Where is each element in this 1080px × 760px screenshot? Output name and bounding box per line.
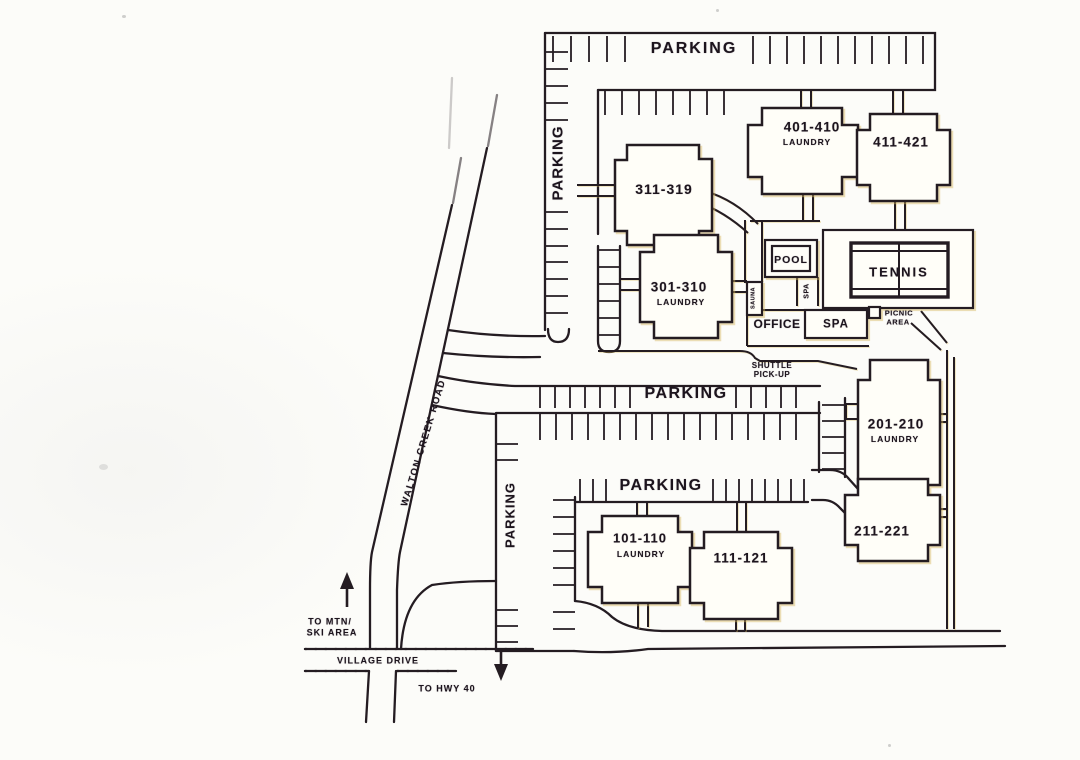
north-arrow-icon bbox=[340, 572, 354, 589]
building-101-110-laundry-label: LAUNDRY bbox=[617, 550, 665, 559]
west-stall-cap bbox=[548, 329, 569, 342]
building-301-310-laundry-label: LAUNDRY bbox=[657, 298, 705, 307]
building-411-421-label: 411-421 bbox=[873, 135, 929, 149]
scan-speck bbox=[99, 464, 108, 470]
building-201-210-label: 201-210 bbox=[868, 417, 925, 431]
scan-speck bbox=[716, 9, 719, 12]
building-401-410-label: 401-410 bbox=[784, 120, 841, 134]
building-401-410-laundry-label: LAUNDRY bbox=[783, 138, 831, 147]
south-arrow-icon bbox=[494, 664, 508, 681]
shuttle-lane-edge bbox=[598, 351, 857, 369]
top-parking-outline bbox=[545, 33, 935, 90]
to-mtn-ski-area-label-line1: TO MTN/ bbox=[308, 618, 352, 627]
walk-411-south bbox=[895, 201, 905, 229]
scan-speck bbox=[122, 15, 126, 18]
parking-label-middle: PARKING bbox=[644, 386, 727, 402]
walk-101-north bbox=[637, 502, 647, 516]
middle-entrance-bottom bbox=[432, 405, 496, 414]
office-label: OFFICE bbox=[754, 318, 801, 330]
scan-speck bbox=[888, 744, 891, 747]
court-lane-lower bbox=[812, 500, 849, 517]
building-101-110-label: 101-110 bbox=[613, 532, 667, 545]
resort-site-map: PARKING PARKING PARKING PARKING PARKING … bbox=[0, 0, 1080, 760]
building-111-121-label: 111-121 bbox=[713, 551, 768, 565]
walk-401-south bbox=[803, 194, 813, 221]
building-111-121-outline bbox=[690, 532, 792, 619]
walton-creek-road-faint-upper bbox=[453, 95, 497, 203]
building-411-421-outline bbox=[857, 114, 950, 201]
sauna-label: SAUNA bbox=[751, 287, 757, 309]
shuttle-pickup-label-line2: PICK-UP bbox=[754, 371, 790, 379]
spa-walk-label: SPA bbox=[804, 283, 811, 298]
walk-311-west bbox=[577, 185, 615, 196]
site-map-canvas bbox=[0, 0, 1080, 760]
walk-111-north bbox=[737, 502, 746, 532]
walton-creek-road-east-edge-lower bbox=[394, 671, 396, 722]
walton-creek-road-west-edge-lower bbox=[366, 671, 369, 722]
walk-111-south bbox=[736, 619, 745, 631]
village-drive-label: VILLAGE DRIVE bbox=[337, 657, 419, 666]
to-mtn-ski-area-label-line2: SKI AREA bbox=[307, 629, 358, 638]
building-211-221-outline bbox=[845, 479, 940, 561]
walk-411-north bbox=[893, 90, 903, 114]
picnic-area-label-line1: PICNIC bbox=[885, 309, 913, 317]
building-101-110-outline bbox=[588, 516, 692, 603]
scan-smear bbox=[449, 78, 452, 148]
to-hwy-40-label: TO HWY 40 bbox=[418, 685, 475, 694]
pool-label: POOL bbox=[774, 255, 808, 266]
building-311-319-label: 311-319 bbox=[635, 182, 693, 196]
walk-101-south bbox=[638, 603, 648, 628]
west-entrance-top bbox=[448, 330, 545, 336]
walk-picnic-diagonal bbox=[911, 311, 947, 350]
picnic-marker bbox=[869, 307, 880, 318]
walk-east-path bbox=[947, 350, 954, 629]
building-301-310-label: 301-310 bbox=[651, 280, 708, 294]
parking-label-southwest: PARKING bbox=[504, 482, 517, 548]
walton-creek-road-west-edge bbox=[370, 205, 452, 648]
tennis-label: TENNIS bbox=[869, 266, 929, 279]
picnic-area-label-line2: AREA bbox=[886, 318, 909, 326]
building-211-221-label: 211-221 bbox=[854, 524, 910, 538]
shuttle-pickup-label-line1: SHUTTLE bbox=[752, 362, 792, 370]
parking-label-south: PARKING bbox=[619, 478, 702, 494]
parking-label-west: PARKING bbox=[551, 125, 566, 200]
walk-401-north bbox=[801, 90, 811, 108]
building-201-210-laundry-label: LAUNDRY bbox=[871, 435, 919, 444]
walk-301-west bbox=[620, 279, 640, 290]
spa-label: SPA bbox=[823, 319, 849, 331]
west-entrance-bottom bbox=[443, 353, 540, 357]
bottom-road-south-edge bbox=[574, 646, 1005, 652]
south-entrance-curve bbox=[401, 581, 496, 649]
parking-label-top: PARKING bbox=[651, 41, 738, 57]
